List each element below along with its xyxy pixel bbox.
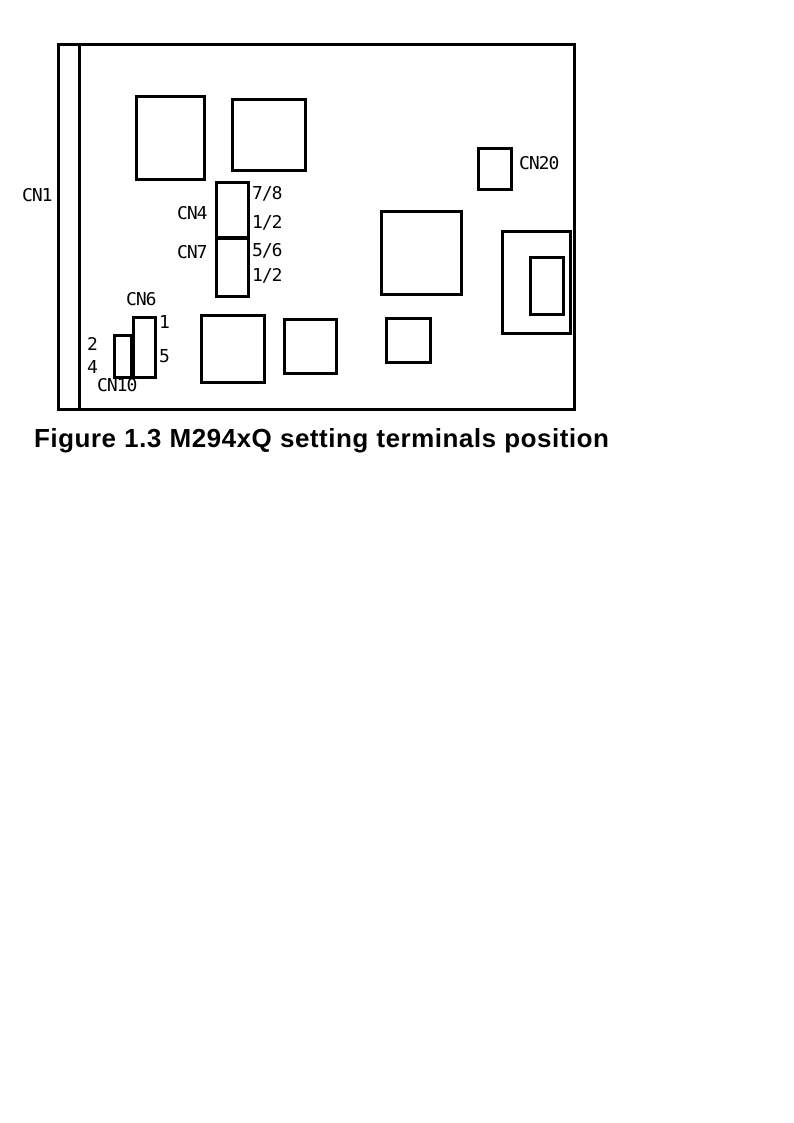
cn7-label: CN7 [177, 244, 207, 262]
component-block-middle [380, 210, 463, 296]
cn6-pin-top-label: 1 [159, 314, 169, 332]
cn7-pin-bottom-label: 1/2 [252, 267, 282, 285]
cn10-pin-top-label: 2 [87, 336, 97, 354]
cn10-connector [113, 334, 133, 379]
component-block-bottom-2 [283, 318, 338, 375]
component-block-bottom-3 [385, 317, 432, 364]
cn1-label: CN1 [22, 187, 52, 205]
cn4-label: CN4 [177, 205, 207, 223]
component-block-right-inner [529, 256, 565, 316]
cn7-pin-top-label: 5/6 [252, 242, 282, 260]
cn4-cn7-divider-line [215, 236, 250, 240]
cn10-pin-bottom-label: 4 [87, 359, 97, 377]
document-page: CN1 CN4 CN7 7/8 1/2 5/6 1/2 CN20 CN6 1 5… [0, 0, 794, 1123]
cn6-label: CN6 [126, 291, 156, 309]
cn10-label: CN10 [97, 377, 136, 395]
cn1-connector-strip [78, 43, 81, 411]
component-block-top-left [135, 95, 206, 181]
component-block-top-right [231, 98, 307, 172]
figure-caption: Figure 1.3 M294xQ setting terminals posi… [34, 424, 609, 453]
component-block-bottom-1 [200, 314, 266, 384]
cn20-label: CN20 [519, 155, 558, 173]
cn4-pin-bottom-label: 1/2 [252, 214, 282, 232]
cn6-pin-bottom-label: 5 [159, 348, 169, 366]
cn6-connector [132, 316, 157, 379]
cn4-pin-top-label: 7/8 [252, 185, 282, 203]
cn20-connector [477, 147, 513, 191]
